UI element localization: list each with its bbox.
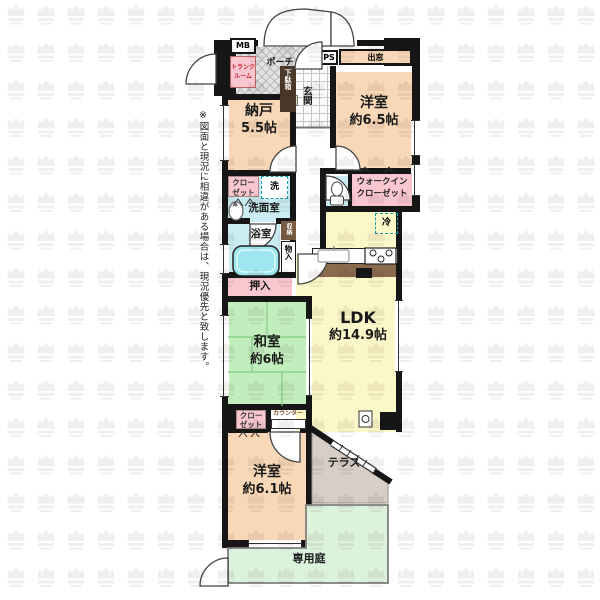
counter-label: カウンター xyxy=(264,410,312,418)
ldk-name: LDK xyxy=(320,308,396,328)
meter-box-mb: MB xyxy=(230,38,256,54)
wall xyxy=(302,540,312,548)
genkan-label: 玄関 xyxy=(300,73,312,117)
washroom-label: 洗面室 xyxy=(236,202,292,215)
porch-label: ポーチ xyxy=(254,58,306,69)
closet-1: クロー ゼット xyxy=(228,176,259,197)
kitchen-step xyxy=(356,268,372,278)
bath-label-text: 浴室 xyxy=(251,228,272,240)
diagonal-wall xyxy=(374,471,391,482)
ldk-size: 約14.9帖 xyxy=(320,328,396,344)
washer-space: 洗 xyxy=(261,176,288,199)
mb-label: MB xyxy=(236,41,250,50)
wic-label-2: クローゼット xyxy=(352,189,412,201)
window xyxy=(220,105,229,161)
washroom-label-text: 洗面室 xyxy=(248,202,280,214)
sliding-door xyxy=(306,318,312,396)
shoe-cabinet-label: 下駄箱 xyxy=(283,69,293,90)
genkan-label-text: 玄関 xyxy=(301,86,312,105)
pipe-space: PS xyxy=(320,50,338,65)
closet-2-label-1: クロー xyxy=(237,411,265,420)
oshiire-label-text: 押入 xyxy=(250,280,271,292)
ps-label: PS xyxy=(323,53,335,62)
storage-box: 収納 xyxy=(281,221,296,240)
window xyxy=(248,540,302,549)
window xyxy=(411,164,420,196)
disclaimer-note-text: ※図面と現況に相違がある場合は、現況優先と致します。 xyxy=(198,110,209,372)
door-arc-porch-gate xyxy=(186,54,216,84)
window xyxy=(411,120,420,156)
door-tick xyxy=(339,445,343,451)
porch-label-text: ポーチ xyxy=(266,58,293,68)
trunk-label-1: トランク xyxy=(231,63,255,72)
fridge-space: 冷 xyxy=(375,213,398,234)
bay-window: 出窓 xyxy=(339,49,412,65)
door-arc-garden-gate xyxy=(200,558,228,586)
terrace-label-text: テラス xyxy=(328,456,361,469)
garden-label: 専用庭 xyxy=(284,552,334,566)
counter-strip xyxy=(271,419,306,429)
bath-label: 浴室 xyxy=(240,228,282,241)
trunk-label-2: ルーム xyxy=(231,72,255,81)
west-room1-label: 洋室 約6.5帖 xyxy=(337,95,411,129)
wall xyxy=(330,66,336,148)
west-room2-label: 洋室 約6.1帖 xyxy=(230,464,304,498)
kitchen-counter xyxy=(312,248,398,264)
floor-plan: MB トランク ルーム PS 出窓 下駄箱 クロー ゼット 洗 収納 物入 ウォ… xyxy=(0,0,600,600)
corridor-lower xyxy=(296,174,320,248)
west-room2-name: 洋室 xyxy=(230,464,304,482)
window xyxy=(220,244,229,274)
closet-1-label-2: ゼット xyxy=(229,188,258,198)
washitsu-label: 和室 約6帖 xyxy=(237,334,297,367)
terrace-label: テラス xyxy=(321,456,367,470)
walk-in-closet: ウォークイン クローゼット xyxy=(352,174,412,206)
closet-1-label-1: クロー xyxy=(229,178,258,188)
wall xyxy=(222,296,312,302)
bay-window-label: 出窓 xyxy=(368,53,384,62)
west-room1-name: 洋室 xyxy=(337,95,411,113)
wic-label-1: ウォークイン xyxy=(352,177,412,189)
oshiire-label: 押入 xyxy=(236,280,284,293)
closet-2-label-2: ゼット xyxy=(237,420,265,429)
counter-label-text: カウンター xyxy=(273,410,303,417)
west-room2-size: 約6.1帖 xyxy=(230,482,304,498)
storage-label: 収納 xyxy=(284,223,293,235)
disclaimer-note: ※図面と現況に相違がある場合は、現況優先と致します。 xyxy=(198,110,208,390)
wall xyxy=(412,46,420,120)
ldk-label: LDK 約14.9帖 xyxy=(320,308,396,344)
window xyxy=(395,300,403,372)
kitchen-cabinet xyxy=(310,264,400,277)
washer-label: 洗 xyxy=(270,182,279,192)
west-room1-size: 約6.5帖 xyxy=(337,113,411,129)
wall xyxy=(222,218,250,224)
wall xyxy=(222,540,248,548)
cupboard-label: 物入 xyxy=(283,245,294,260)
cupboard-box: 物入 xyxy=(281,241,296,273)
fridge-label: 冷 xyxy=(382,218,391,228)
window xyxy=(220,315,229,397)
closet-2: クロー ゼット xyxy=(236,410,266,429)
garden-label-text: 専用庭 xyxy=(293,552,326,565)
wall xyxy=(412,156,420,164)
wall xyxy=(396,372,402,432)
nando-name: 納戸 xyxy=(229,103,289,121)
washitsu-name: 和室 xyxy=(237,334,297,351)
nando-label: 納戸 5.5帖 xyxy=(229,103,289,137)
washitsu-size: 約6帖 xyxy=(237,351,297,367)
trunk-room: トランク ルーム xyxy=(230,56,256,88)
nando-size: 5.5帖 xyxy=(229,121,289,137)
wall xyxy=(306,432,312,505)
